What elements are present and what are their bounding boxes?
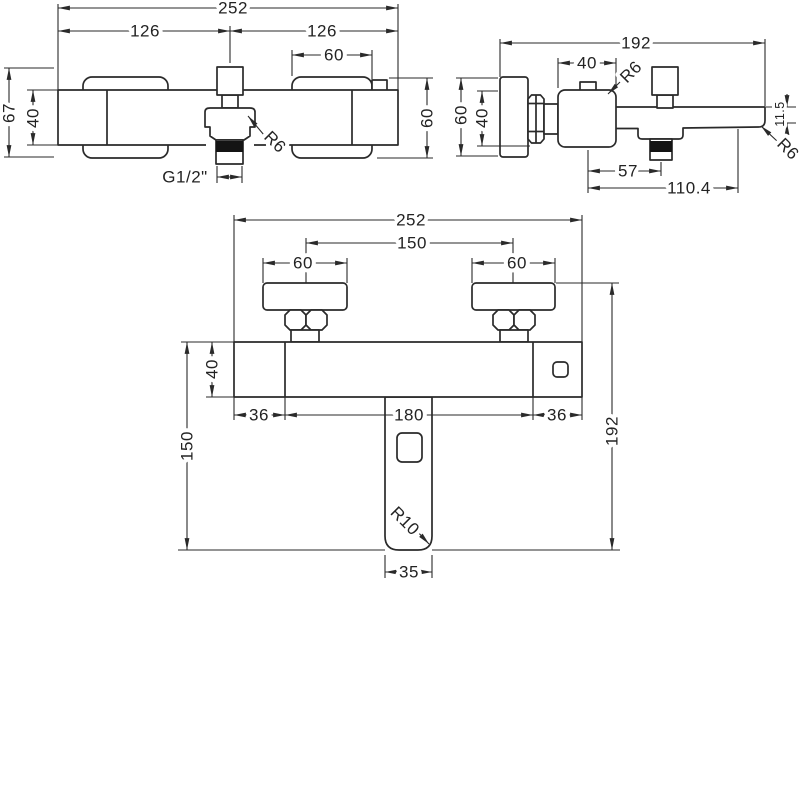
dim-spout-reach: 110.4 [667,179,711,198]
dim-left-handle-width: 60 [293,254,313,273]
dim-center-span: 180 [394,406,424,425]
dim-handle-radius: R6 [616,57,646,87]
dim-spout-width: 35 [399,563,419,582]
wall-flange [500,77,528,157]
dim-overall-length: 192 [621,34,651,53]
outlet-cone [205,108,255,140]
left-handle-stem [291,330,319,342]
diverter-stem-side [657,95,673,108]
left-hex-nut-a [285,310,306,330]
dim-handle-centers: 150 [397,234,427,253]
right-hex-nut-a [493,310,514,330]
dim-body-depth: 40 [24,108,43,128]
dim-tip-height: 11.5 [773,101,787,126]
view-top: 252 126 126 60 67 40 60 G1/2" R6 [0,0,437,187]
dim-body-height: 40 [203,359,222,379]
dim-overall-height: 192 [603,416,622,446]
leader-line [761,126,777,141]
dim-flange-size: 60 [452,105,471,125]
mixer-body-front [234,342,582,397]
dim-right-center: 126 [307,22,337,41]
right-handle-front [472,283,555,310]
spout-side-view [615,107,765,139]
dim-handle-width: 60 [324,46,344,65]
view-side: 192 40 R6 60 40 57 110.4 11.5 [452,34,800,198]
left-handle-front [263,283,347,310]
outlet-thread [216,141,243,152]
dim-handle-size: 40 [577,54,597,73]
dim-overall-depth: 67 [0,103,19,123]
dim-right-handle-width: 60 [507,254,527,273]
page: 252 126 126 60 67 40 60 G1/2" R6 [0,0,800,800]
diverter-knob [217,67,243,95]
right-hex-nut-b [514,310,535,330]
diverter-stem [222,95,238,108]
dim-outlet-offset: 57 [618,162,638,181]
dim-body-to-tip: 150 [178,431,197,461]
nut-connector [544,104,558,134]
dim-tip-radius: R6 [773,134,800,164]
technical-drawing: 252 126 126 60 67 40 60 G1/2" R6 [0,0,800,800]
outlet-thread-side [650,141,672,152]
dim-overall-width-top: 252 [218,0,248,18]
dim-right-inset: 36 [547,406,567,425]
left-hex-nut-b [306,310,327,330]
dim-left-inset: 36 [249,406,269,425]
dim-outlet-thread: G1/2" [162,168,207,187]
view-front: 252 150 60 60 40 150 36 180 36 [178,211,622,582]
diverter-knob-side [652,67,678,95]
right-handle-stem [500,330,528,342]
dim-overall-width-front: 252 [396,211,426,230]
dim-handle-depth: 60 [418,108,437,128]
dim-left-center: 126 [130,22,160,41]
dim-body-size: 40 [473,108,492,128]
handle-side-view [558,90,616,147]
